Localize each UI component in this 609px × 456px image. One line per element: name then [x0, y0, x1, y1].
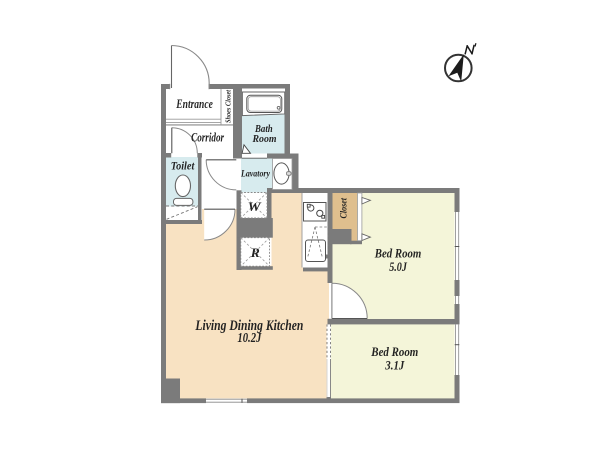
svg-text:R: R: [250, 245, 260, 260]
svg-text:10.2J: 10.2J: [237, 330, 262, 345]
svg-text:W: W: [248, 199, 263, 214]
svg-text:Room: Room: [252, 133, 277, 145]
svg-text:Closet: Closet: [339, 198, 349, 219]
svg-text:Entrance: Entrance: [176, 96, 213, 111]
svg-text:Bed Room: Bed Room: [370, 345, 418, 359]
svg-text:Lavatory: Lavatory: [240, 168, 271, 178]
svg-text:Corridor: Corridor: [191, 131, 224, 145]
svg-text:Shoes Closet: Shoes Closet: [224, 89, 233, 123]
svg-text:5.0J: 5.0J: [389, 260, 407, 274]
svg-text:Toilet: Toilet: [171, 161, 195, 173]
svg-text:3.1J: 3.1J: [384, 359, 405, 373]
svg-text:Bed Room: Bed Room: [374, 247, 422, 261]
